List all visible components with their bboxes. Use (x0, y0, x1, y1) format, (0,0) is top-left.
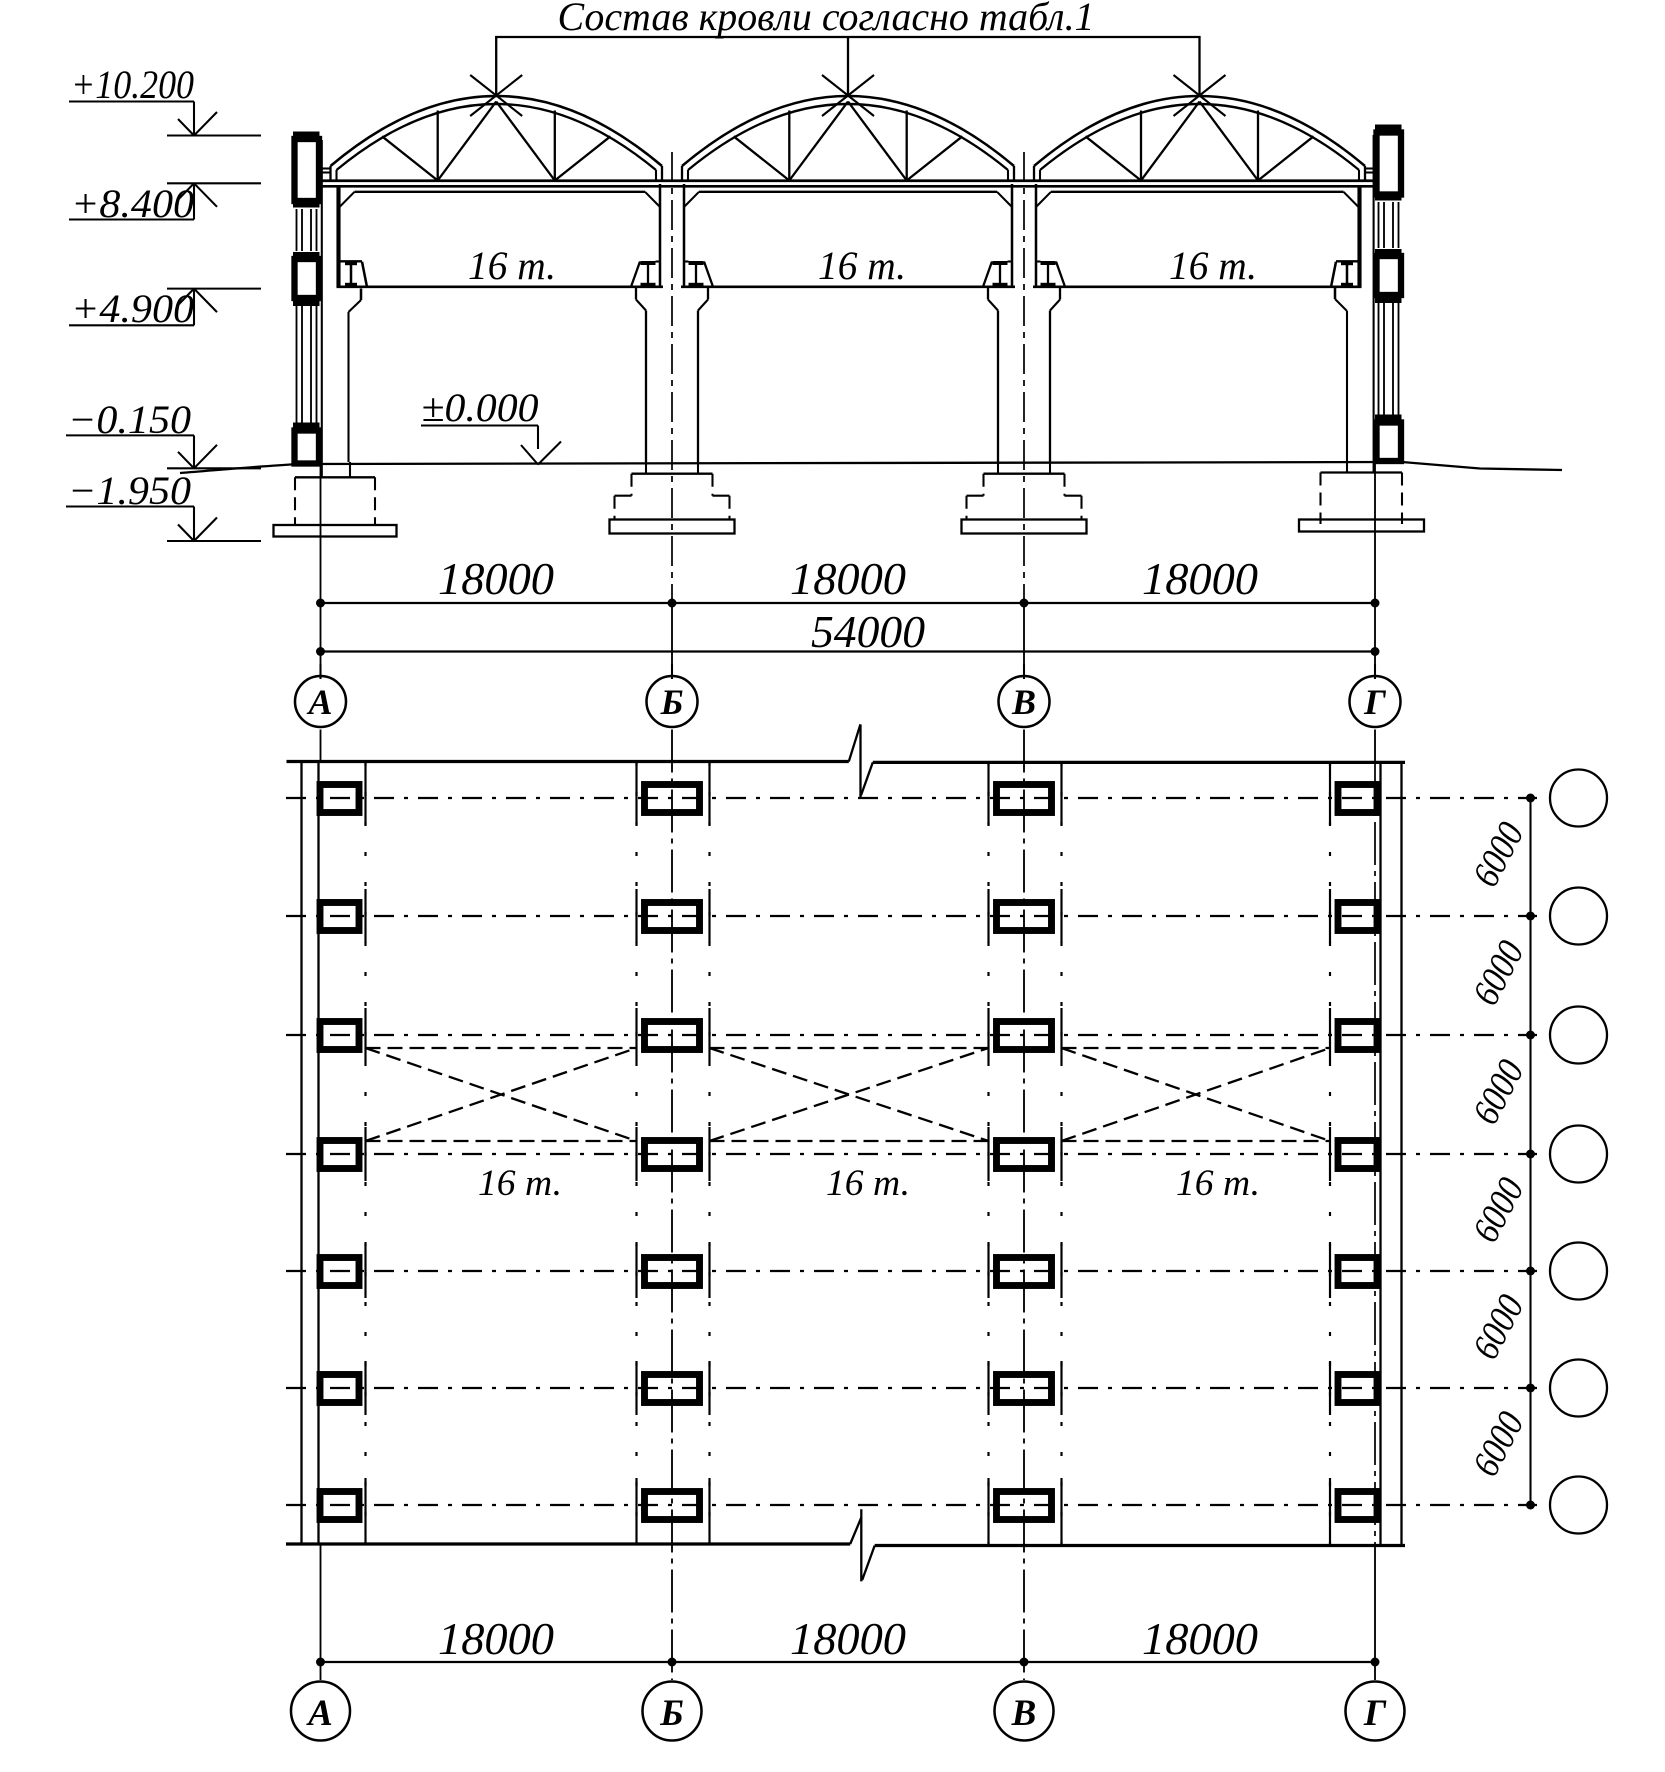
svg-text:В: В (1011, 682, 1036, 722)
svg-text:18000: 18000 (790, 553, 906, 604)
svg-text:Состав кровли согласно табл.1: Состав кровли согласно табл.1 (558, 0, 1095, 39)
svg-text:16 т.: 16 т. (468, 243, 556, 288)
svg-text:Г: Г (1363, 682, 1386, 722)
svg-text:54000: 54000 (811, 606, 925, 657)
svg-text:18000: 18000 (790, 1613, 906, 1664)
svg-text:±0.000: ±0.000 (422, 385, 539, 430)
svg-text:16 т.: 16 т. (818, 243, 906, 288)
svg-text:18000: 18000 (438, 1613, 554, 1664)
svg-text:Б: Б (660, 682, 684, 722)
svg-text:+4.900: +4.900 (71, 286, 194, 331)
svg-text:18000: 18000 (438, 553, 554, 604)
svg-text:16 т.: 16 т. (1176, 1163, 1260, 1204)
svg-text:18000: 18000 (1142, 1613, 1258, 1664)
svg-text:16 т.: 16 т. (1169, 243, 1257, 288)
svg-text:18000: 18000 (1142, 553, 1258, 604)
svg-text:16 т.: 16 т. (826, 1163, 910, 1204)
svg-text:А: А (306, 1693, 333, 1734)
svg-text:Б: Б (659, 1693, 684, 1734)
svg-text:+10.200: +10.200 (71, 62, 194, 107)
svg-text:В: В (1011, 1693, 1037, 1734)
svg-text:А: А (306, 682, 332, 722)
svg-text:16 т.: 16 т. (478, 1163, 562, 1204)
svg-text:Г: Г (1363, 1693, 1387, 1734)
